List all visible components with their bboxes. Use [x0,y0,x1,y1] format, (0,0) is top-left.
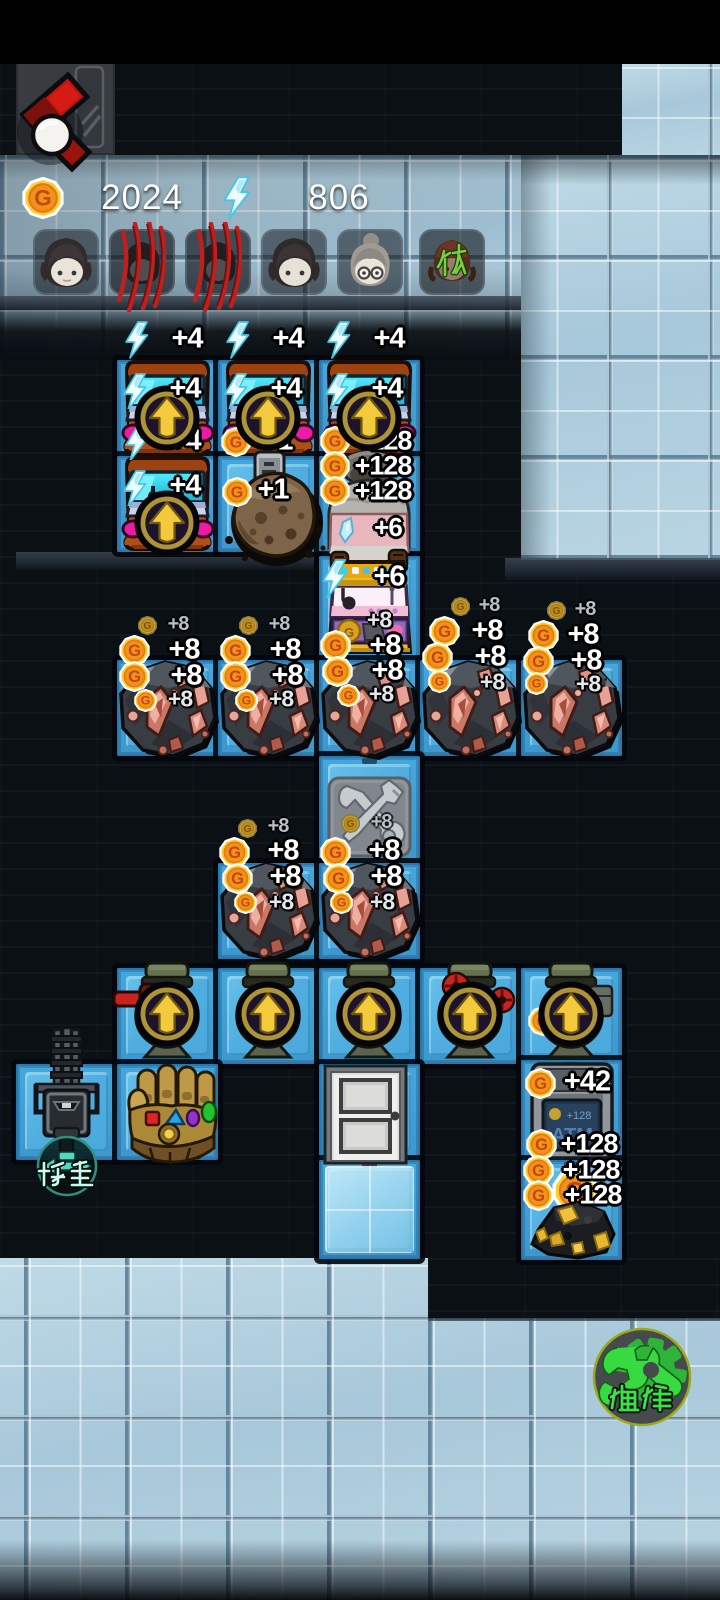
svg-text:+128: +128 [567,1110,592,1122]
